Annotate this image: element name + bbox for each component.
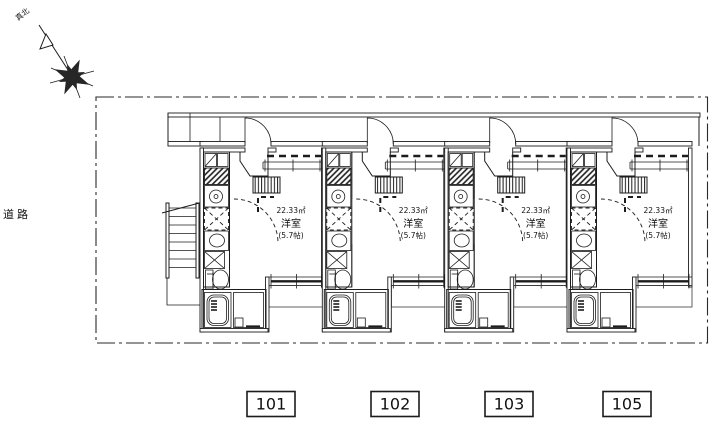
unit-number-box-103: 103	[485, 392, 533, 417]
room-area-label: 22.33㎡	[277, 206, 306, 215]
unit-number-label: 101	[256, 395, 287, 414]
room-label-102: 22.33㎡ 洋室 (5.7帖)	[399, 206, 428, 240]
room-tatami-label: (5.7帖)	[645, 230, 670, 240]
room-type-label: 洋室	[648, 217, 668, 230]
room-type-label: 洋室	[526, 217, 546, 230]
floor-plan-page: 真北 道路 22.33㎡ 洋室 (5.7帖)	[0, 0, 721, 436]
room-area-label: 22.33㎡	[644, 206, 673, 215]
stair-landing	[167, 278, 200, 305]
unit-105-floorplan	[567, 118, 692, 332]
north-arrowhead	[40, 34, 53, 49]
room-tatami-label: (5.7帖)	[278, 230, 303, 240]
unit-103-floorplan	[445, 118, 570, 332]
unit-number-label: 102	[380, 395, 411, 414]
unit-102-floorplan	[322, 118, 447, 332]
road-label: 道路	[3, 207, 31, 221]
room-tatami-label: (5.7帖)	[523, 230, 548, 240]
floor-plan-canvas: 真北 道路 22.33㎡ 洋室 (5.7帖)	[0, 0, 721, 436]
room-tatami-label: (5.7帖)	[401, 230, 426, 240]
unit-number-box-102: 102	[371, 392, 419, 417]
north-arrow-icon: 真北	[13, 5, 97, 102]
unit-number-box-101: 101	[247, 392, 295, 417]
room-type-label: 洋室	[403, 217, 423, 230]
room-label-105: 22.33㎡ 洋室 (5.7帖)	[644, 206, 673, 240]
unit-number-label: 105	[612, 395, 643, 414]
room-label-103: 22.33㎡ 洋室 (5.7帖)	[521, 206, 550, 240]
room-type-label: 洋室	[281, 217, 301, 230]
site-boundary-line	[96, 97, 708, 343]
room-label-101: 22.33㎡ 洋室 (5.7帖)	[277, 206, 306, 240]
unit-number-label: 103	[494, 395, 525, 414]
unit-number-box-105: 105	[603, 392, 651, 417]
exterior-staircase	[162, 202, 203, 305]
room-area-label: 22.33㎡	[521, 206, 550, 215]
unit-101-floorplan	[200, 118, 325, 332]
room-area-label: 22.33㎡	[399, 206, 428, 215]
north-label: 真北	[13, 5, 31, 22]
